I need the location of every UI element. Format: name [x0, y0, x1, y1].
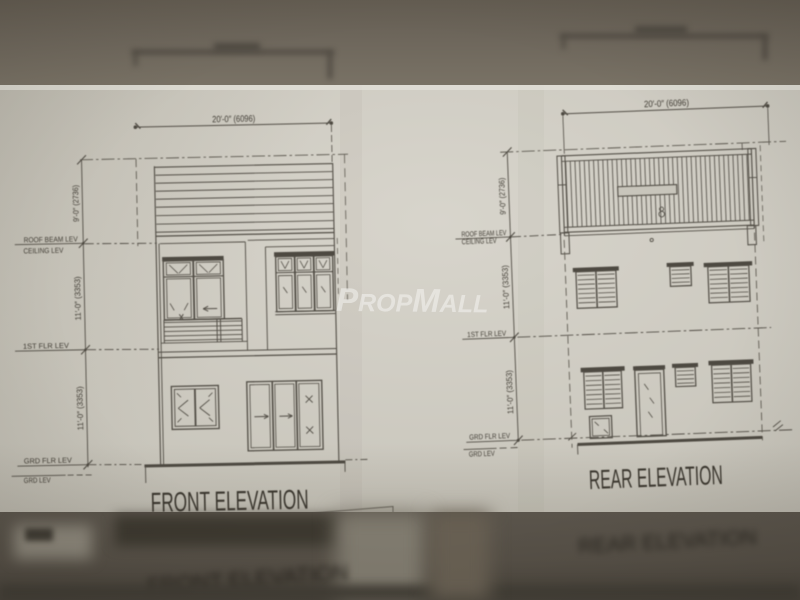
svg-text:ROOF BEAM LEV: ROOF BEAM LEV — [24, 234, 78, 244]
svg-text:REAR ELEVATION: REAR ELEVATION — [588, 460, 723, 495]
svg-text:20′-0″ (6096): 20′-0″ (6096) — [644, 97, 689, 109]
svg-text:9′-0″ (2736): 9′-0″ (2736) — [71, 185, 81, 222]
svg-text:20′-0″ (6096): 20′-0″ (6096) — [212, 113, 255, 124]
svg-text:GRD FLR LEV: GRD FLR LEV — [24, 456, 72, 466]
svg-text:GRD LEV: GRD LEV — [24, 475, 51, 485]
svg-text:GRD FLR LEV: GRD FLR LEV — [469, 431, 510, 442]
svg-text:11′-0″ (3353): 11′-0″ (3353) — [505, 370, 516, 415]
svg-text:CEILING LEV: CEILING LEV — [23, 246, 63, 256]
svg-text:11′-0″ (3353): 11′-0″ (3353) — [75, 386, 85, 430]
svg-text:GRD LEV: GRD LEV — [469, 449, 495, 459]
svg-text:1ST FLR LEV: 1ST FLR LEV — [23, 341, 69, 351]
svg-text:9′-0″ (2736): 9′-0″ (2736) — [497, 177, 507, 215]
svg-text:CEILING LEV: CEILING LEV — [461, 236, 496, 246]
svg-text:11′-0″ (3353): 11′-0″ (3353) — [73, 276, 83, 320]
